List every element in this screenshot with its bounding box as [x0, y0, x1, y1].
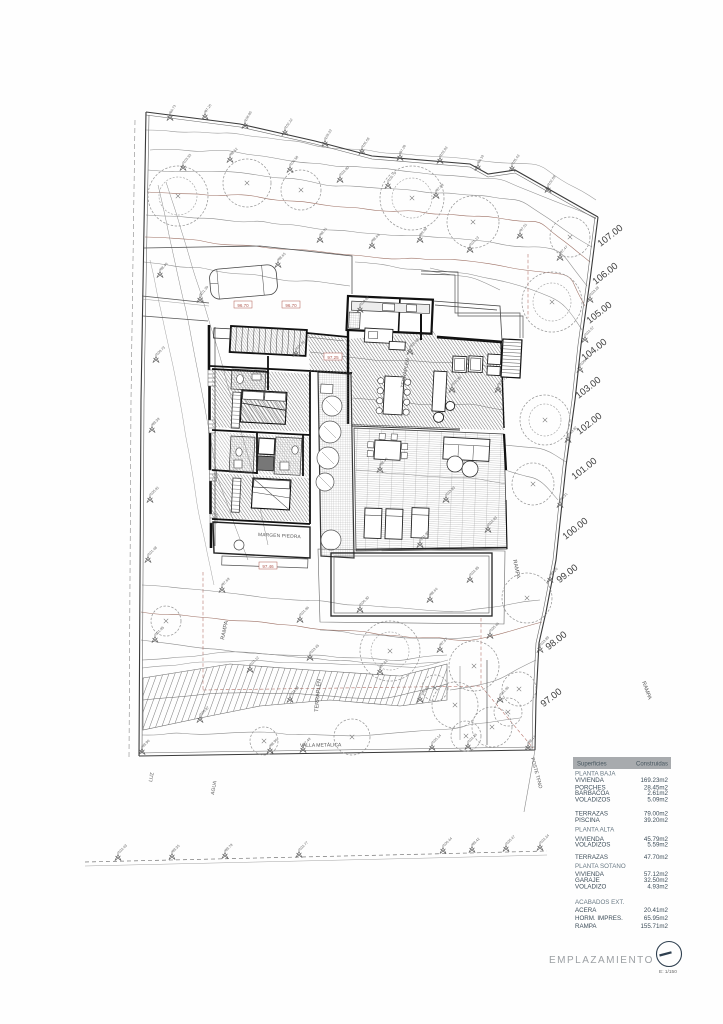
svg-text:VOLADIZO: VOLADIZO: [575, 883, 606, 890]
svg-text:96.70: 96.70: [285, 303, 297, 308]
svg-text:97.46: 97.46: [262, 564, 274, 569]
svg-text:VOLADIZOS: VOLADIZOS: [575, 842, 610, 849]
svg-text:PISCINA: PISCINA: [575, 817, 601, 824]
svg-text:20.41m2: 20.41m2: [644, 907, 669, 914]
svg-text:TERRAZAS: TERRAZAS: [575, 854, 608, 861]
svg-text:RAMPA: RAMPA: [575, 923, 597, 930]
svg-text:39.20m2: 39.20m2: [644, 817, 669, 824]
svg-text:PLANTA SOTANO: PLANTA SOTANO: [575, 863, 626, 870]
svg-text:4.93m2: 4.93m2: [647, 883, 668, 890]
svg-text:97.25: 97.25: [327, 355, 339, 360]
svg-text:VOLADIZOS: VOLADIZOS: [575, 797, 610, 804]
svg-text:E: 1/150: E: 1/150: [659, 969, 677, 975]
svg-text:ACERA: ACERA: [575, 907, 597, 914]
svg-text:169.23m2: 169.23m2: [640, 777, 668, 784]
svg-text:5.59m2: 5.59m2: [647, 842, 668, 849]
svg-text:5.09m2: 5.09m2: [647, 797, 668, 804]
svg-text:VIVIENDA: VIVIENDA: [575, 777, 605, 784]
svg-text:Construidas: Construidas: [636, 762, 668, 768]
svg-text:96.70: 96.70: [237, 303, 249, 308]
svg-text:Superficies: Superficies: [577, 762, 607, 768]
svg-text:EMPLAZAMIENTO: EMPLAZAMIENTO: [549, 955, 654, 966]
svg-text:47.70m2: 47.70m2: [644, 854, 669, 861]
svg-text:155.71m2: 155.71m2: [640, 923, 668, 930]
svg-text:VALLA METÁLICA: VALLA METÁLICA: [300, 741, 342, 749]
svg-text:PLANTA ALTA: PLANTA ALTA: [575, 827, 615, 834]
svg-text:HORM. IMPRES.: HORM. IMPRES.: [575, 915, 623, 922]
svg-text:ACABADOS EXT.: ACABADOS EXT.: [575, 899, 624, 906]
svg-text:65.95m2: 65.95m2: [644, 915, 669, 922]
